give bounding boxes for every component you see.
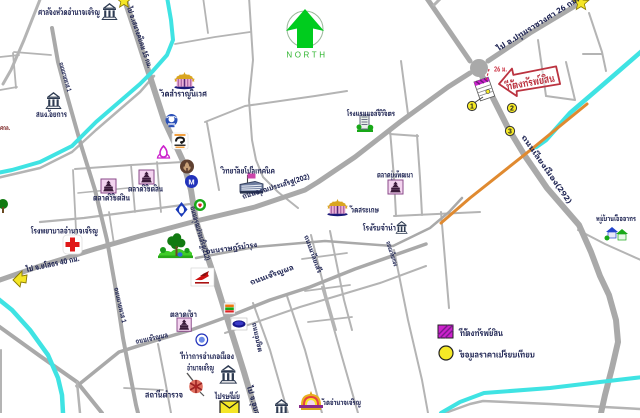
svg-text:1: 1 [470,104,474,111]
svg-text:NORTH: NORTH [286,51,327,60]
svg-text:2: 2 [510,106,514,113]
svg-text:M: M [188,177,194,186]
svg-text:3: 3 [508,129,512,136]
